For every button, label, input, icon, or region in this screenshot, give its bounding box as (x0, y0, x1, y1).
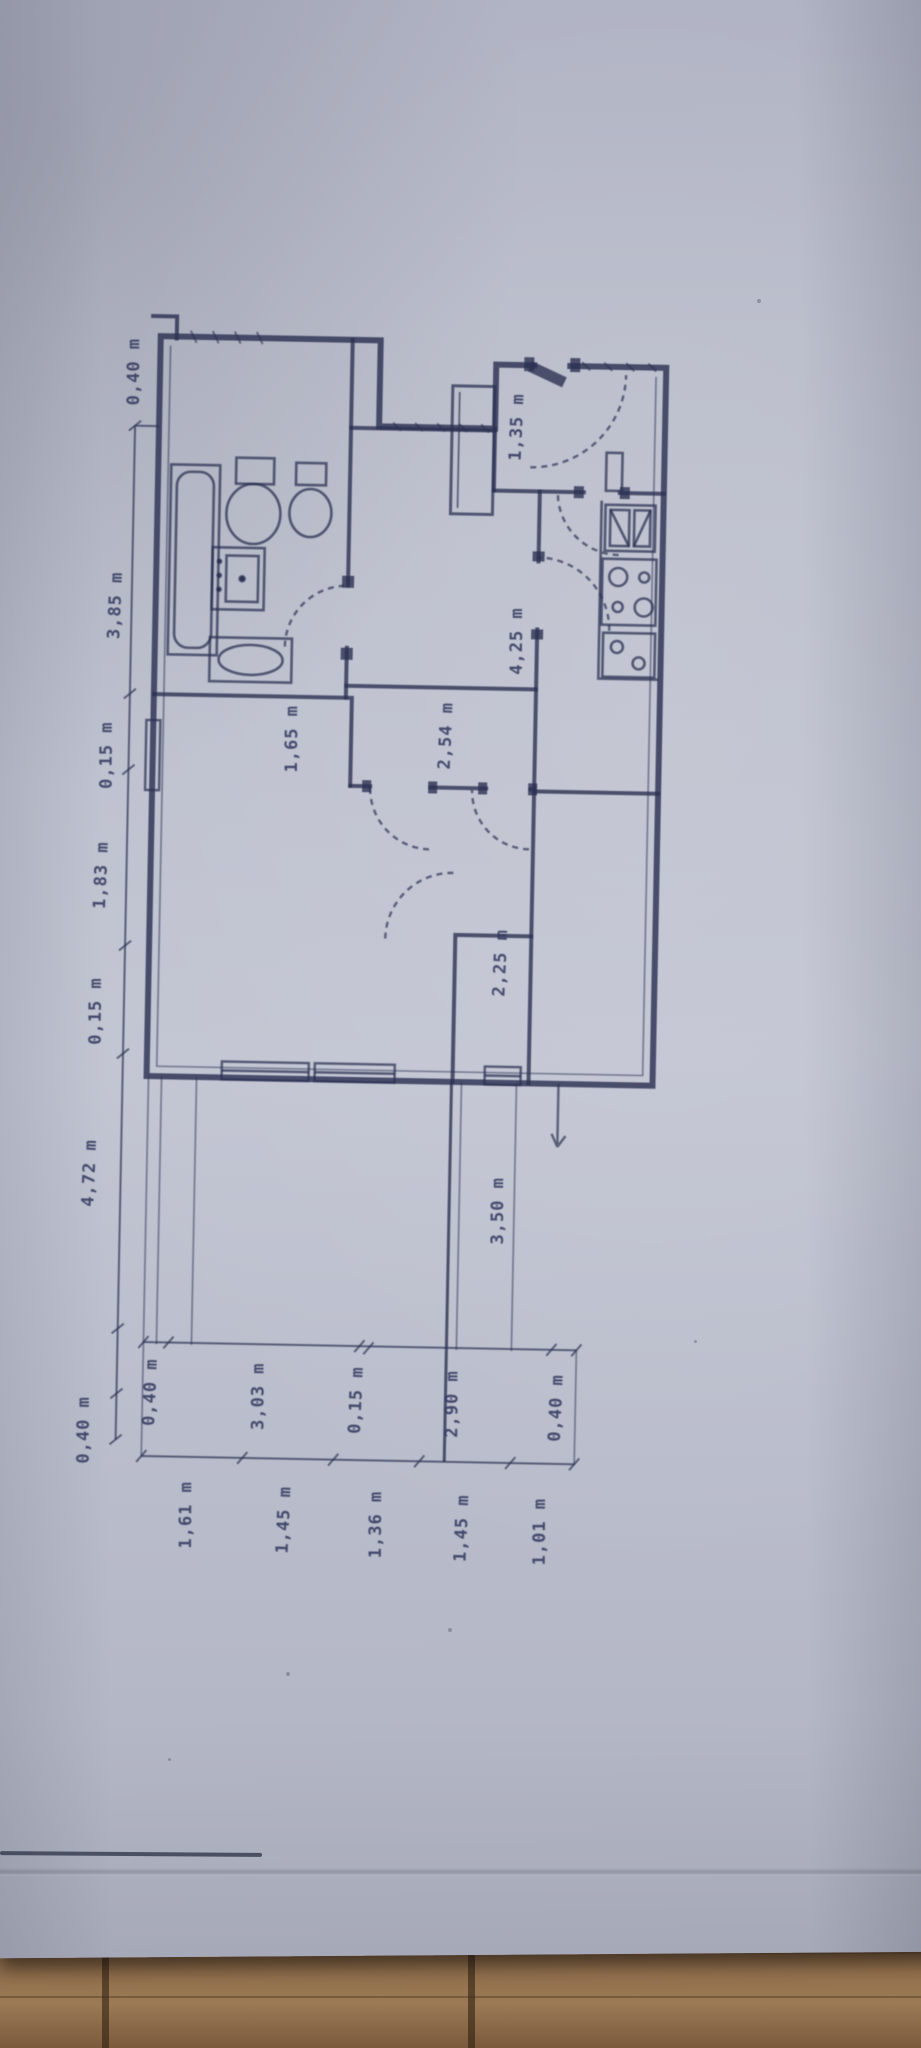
entry-door-arc (530, 373, 626, 469)
dim-label-entry: 1,35 m (506, 393, 529, 461)
dust-speck (694, 1340, 697, 1343)
dim-label-left-2: 0,15 m (97, 721, 117, 789)
dim-label-kitchen: 4,25 m (507, 607, 527, 675)
dim-label-bottom-lower-0: 1,61 m (176, 1481, 196, 1549)
room-door-arc (369, 786, 430, 849)
bathroom-door-arc (285, 585, 348, 648)
dim-label-bottom-lower-4: 1,01 m (530, 1498, 550, 1566)
dust-speck (168, 1758, 171, 1761)
dim-label-bottom-upper-4: 0,40 m (545, 1374, 568, 1442)
dim-label-closet: 2,25 m (489, 929, 512, 997)
closet-hall-door-arc (471, 790, 530, 849)
dust-speck (286, 1672, 290, 1676)
dim-label-bottom-lower-2: 1,36 m (366, 1491, 386, 1559)
dim-label-left-1: 3,85 m (104, 571, 127, 639)
leader-arrow (551, 1084, 566, 1147)
floor-plan-linework (0, 0, 921, 2048)
dim-label-bottom-lower-3: 1,45 m (450, 1494, 473, 1562)
bathroom-sink-icon (209, 637, 292, 683)
dim-label-left-3: 1,83 m (90, 841, 113, 909)
flue-shaft (606, 453, 623, 491)
kitchen-sink-icon (605, 505, 656, 552)
toilet-icon (226, 457, 282, 544)
stove-icon (601, 559, 656, 626)
dust-speck (757, 299, 761, 303)
interior-walls (147, 336, 667, 1086)
photo-of-floor-plan: 0,40 m 3,85 m 0,15 m 1,83 m 0,15 m 4,72 … (0, 0, 921, 2048)
bidet-icon (289, 463, 332, 538)
dim-label-bathroom: 1,65 m (282, 705, 302, 773)
dim-label-bottom-upper-0: 0,40 m (139, 1358, 162, 1426)
floor-plan-drawing: 0,40 m 3,85 m 0,15 m 1,83 m 0,15 m 4,72 … (0, 0, 921, 2048)
door-jambs (338, 354, 632, 797)
dim-label-left-6: 0,40 m (74, 1396, 94, 1464)
dim-label-bottom-upper-3: 2,90 m (442, 1370, 462, 1438)
fridge-icon (602, 633, 655, 678)
dust-speck (448, 1628, 452, 1632)
dim-label-corridor: 2,54 m (435, 702, 458, 770)
dim-label-bottom-upper-1: 3,03 m (248, 1362, 268, 1430)
closet-door-arc (385, 872, 453, 940)
dim-label-lower-room: 3,50 m (488, 1177, 508, 1245)
wall-hatching (189, 331, 657, 436)
dim-label-left-0: 0,40 m (124, 338, 144, 406)
dim-label-left-5: 4,72 m (78, 1139, 101, 1207)
paper-crease (0, 1868, 921, 1876)
window-symbols (140, 720, 528, 1085)
outer-walls (139, 316, 667, 1086)
dim-label-left-4: 0,15 m (86, 977, 106, 1045)
dim-label-bottom-upper-2: 0,15 m (345, 1366, 368, 1434)
wardrobe-icon (450, 386, 494, 515)
bathroom-fixtures (167, 456, 332, 683)
dim-label-bottom-lower-1: 1,45 m (273, 1486, 296, 1554)
